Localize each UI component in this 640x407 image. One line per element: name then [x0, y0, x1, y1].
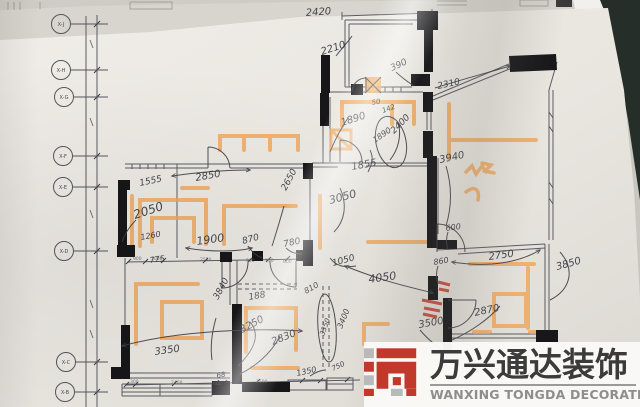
printed-dimension: 2400	[171, 380, 183, 386]
svg-text:X-D: X-D	[60, 249, 69, 255]
printed-dimension: 2550	[200, 257, 212, 263]
orange-column-mark	[365, 77, 381, 93]
printed-dimension: 750	[265, 258, 274, 264]
watermark-english: WANXING TONGDA DECORATION	[430, 387, 636, 402]
svg-text:X-J: X-J	[58, 22, 65, 28]
printed-dimension: 300	[130, 379, 139, 385]
printed-dimension: 900	[133, 256, 142, 262]
dimension-note: 2420	[305, 6, 331, 19]
printed-dimension: 600	[213, 381, 222, 387]
printed-dimension: 900	[246, 258, 255, 264]
svg-text:X-B: X-B	[61, 390, 70, 396]
svg-text:X-G: X-G	[59, 95, 68, 101]
printed-dimension: 1500	[256, 379, 268, 385]
watermark-banner: 万兴通达装饰 WANXING TONGDA DECORATION	[364, 342, 640, 407]
svg-text:X-F: X-F	[59, 154, 67, 160]
watermark-text: 万兴通达装饰 WANXING TONGDA DECORATION	[430, 348, 636, 402]
svg-text:X-H: X-H	[57, 68, 66, 74]
printed-dimension: 1000	[151, 256, 163, 262]
watermark-chinese: 万兴通达装饰	[430, 348, 636, 382]
wanxing-logo-icon	[370, 348, 424, 402]
dark-object	[556, 0, 572, 7]
printed-dimension: 800	[283, 259, 292, 265]
svg-text:X-C: X-C	[62, 360, 71, 366]
svg-text:X-E: X-E	[59, 185, 67, 191]
photo-of-floorplan: X-JX-HX-GX-FX-EX-DX-CX-B 242022103902310…	[0, 0, 640, 407]
